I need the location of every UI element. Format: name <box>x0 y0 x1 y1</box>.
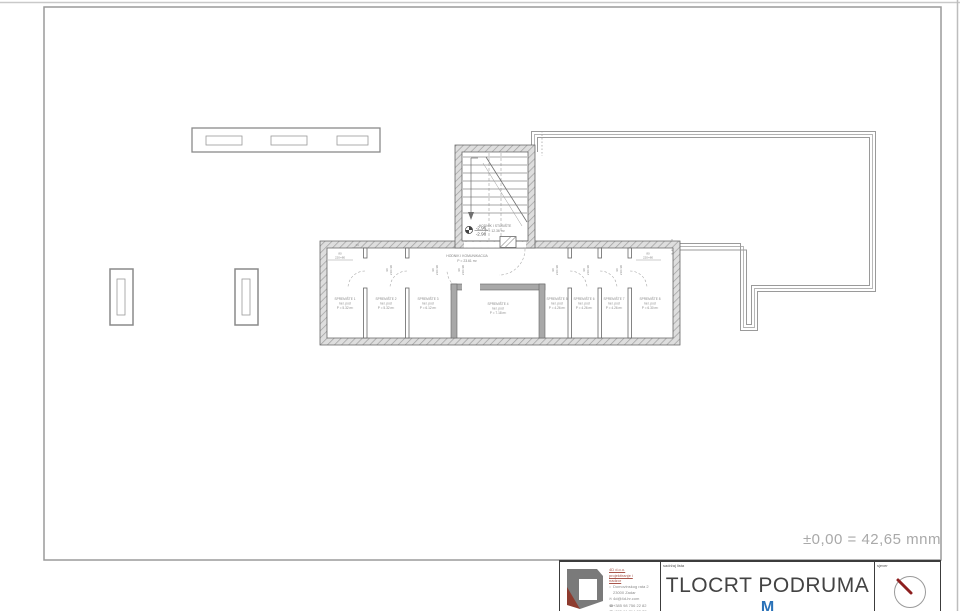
room-label-2: SPREMIŠTE 2 ker. pod P = 5.32 m² <box>375 296 396 310</box>
room-label-8: SPREMIŠTE 8 ker. pod P = 6.30 m² <box>639 296 660 310</box>
room-label-4: SPREMIŠTE 4 ker. pod P = 7.18 m² <box>487 301 508 315</box>
drawing-sheet: -2.96 -2.98 <box>0 0 960 611</box>
title-block: 4D d.o.o. projektiranje i nadzor ⌂Domovi… <box>559 560 941 611</box>
company-logo <box>564 565 606 611</box>
basement-outer-walls <box>320 241 680 345</box>
sheet-title: TLOCRT PODRUMA <box>666 574 869 598</box>
svg-text:P = 23.61 m²: P = 23.61 m² <box>457 259 477 263</box>
room-label-5: SPREMIŠTE 5 ker. pod P = 4.26 m² <box>546 296 567 310</box>
svg-text:210×90: 210×90 <box>555 265 559 275</box>
partition-walls <box>364 248 632 338</box>
svg-text:ker. pod: ker. pod <box>551 302 563 306</box>
dim-window-left: 80 220×80 <box>328 252 353 261</box>
svg-text:SPREMIŠTE 5: SPREMIŠTE 5 <box>546 296 567 301</box>
svg-text:P = 7.18 m²: P = 7.18 m² <box>490 311 507 315</box>
svg-text:P = 5.32 m²: P = 5.32 m² <box>337 306 354 310</box>
dim-door-5: 90 210×90 <box>582 265 590 275</box>
svg-text:220×80: 220×80 <box>335 256 345 260</box>
dim-door-4: 90 210×90 <box>551 265 559 275</box>
svg-text:ker. pod: ker. pod <box>422 302 434 306</box>
svg-text:ker. pod: ker. pod <box>492 307 504 311</box>
svg-text:P = 12.36 m²: P = 12.36 m² <box>485 229 505 233</box>
svg-text:210×90: 210×90 <box>435 265 439 275</box>
svg-text:SPREMIŠTE 7: SPREMIŠTE 7 <box>603 296 624 301</box>
svg-text:SPREMIŠTE 4: SPREMIŠTE 4 <box>487 301 508 306</box>
svg-text:P = 6.12 m²: P = 6.12 m² <box>420 306 437 310</box>
content-label: sadržaj lista <box>663 563 684 568</box>
dim-door-1: 90 210×90 <box>385 265 393 275</box>
dim-window-right: 80 220×80 <box>636 252 661 261</box>
svg-text:P = 4.26 m²: P = 4.26 m² <box>606 306 623 310</box>
svg-text:210×90: 210×90 <box>461 265 465 275</box>
svg-text:ker. pod: ker. pod <box>578 302 590 306</box>
scale-text: M <box>761 599 774 611</box>
svg-text:HODNIK I KOMUNIKACIJA: HODNIK I KOMUNIKACIJA <box>446 254 488 258</box>
svg-text:ker. pod: ker. pod <box>644 302 656 306</box>
svg-text:210×90: 210×90 <box>586 265 590 275</box>
room-label-6: SPREMIŠTE 6 ker. pod P = 4.26 m² <box>573 296 594 310</box>
room-label-1: SPREMIŠTE 1 ker. pod P = 5.32 m² <box>334 296 355 310</box>
vent-grille <box>192 128 380 152</box>
svg-text:ker. pod: ker. pod <box>608 302 620 306</box>
svg-text:ker. pod: ker. pod <box>380 302 392 306</box>
north-label: sjever <box>877 563 888 568</box>
elevation-note: ±0,00 = 42,65 mnm <box>641 531 941 548</box>
title-block-title-cell: sadržaj lista TLOCRT PODRUMA M <box>660 562 874 611</box>
svg-text:220×80: 220×80 <box>643 256 653 260</box>
svg-text:210×90: 210×90 <box>619 265 623 275</box>
svg-text:P = 5.32 m²: P = 5.32 m² <box>378 306 395 310</box>
dim-wall: 14 <box>355 243 359 247</box>
dim-door-6: 90 210×90 <box>615 265 623 275</box>
svg-text:P = 4.26 m²: P = 4.26 m² <box>549 306 566 310</box>
svg-text:SPREMIŠTE 1: SPREMIŠTE 1 <box>334 296 355 301</box>
light-well-1 <box>110 269 133 325</box>
title-block-company-cell: 4D d.o.o. projektiranje i nadzor ⌂Domovi… <box>560 562 660 611</box>
room-labels: SPREMIŠTE 1 ker. pod P = 5.32 m² SPREMIŠ… <box>334 296 660 315</box>
dim-door-3: 90 210×90 <box>457 265 465 275</box>
stair-down-arrow-icon <box>468 212 474 220</box>
sheet-border <box>44 7 941 560</box>
svg-text:SPREMIŠTE 8: SPREMIŠTE 8 <box>639 296 660 301</box>
title-block-north-cell: sjever <box>874 562 940 611</box>
stair-door-opening <box>464 242 526 248</box>
stair-door-swing <box>499 249 525 275</box>
svg-text:SPREMIŠTE 2: SPREMIŠTE 2 <box>375 296 396 301</box>
svg-text:ker. pod: ker. pod <box>339 302 351 306</box>
duct-symbol <box>500 237 516 248</box>
room-label-7: SPREMIŠTE 7 ker. pod P = 4.26 m² <box>603 296 624 310</box>
corridor-label: HODNIK I KOMUNIKACIJA P = 23.61 m² <box>446 254 488 263</box>
svg-text:SPREMIŠTE 6: SPREMIŠTE 6 <box>573 296 594 301</box>
svg-text:HODNIK I STUBIŠTE: HODNIK I STUBIŠTE <box>479 223 512 228</box>
dim-door-2: 90 210×90 <box>431 265 439 275</box>
svg-text:P = 4.26 m²: P = 4.26 m² <box>576 306 593 310</box>
light-well-2 <box>235 269 258 325</box>
svg-text:P = 6.30 m²: P = 6.30 m² <box>642 306 659 310</box>
room-label-3: SPREMIŠTE 3 ker. pod P = 6.12 m² <box>417 296 438 310</box>
central-room-door-opening <box>462 284 480 291</box>
floor-plan-canvas: -2.96 -2.98 <box>0 0 960 611</box>
svg-text:SPREMIŠTE 3: SPREMIŠTE 3 <box>417 296 438 301</box>
svg-text:210×90: 210×90 <box>389 265 393 275</box>
north-compass-icon <box>883 570 933 610</box>
company-info: 4D d.o.o. projektiranje i nadzor ⌂Domovi… <box>609 565 649 611</box>
